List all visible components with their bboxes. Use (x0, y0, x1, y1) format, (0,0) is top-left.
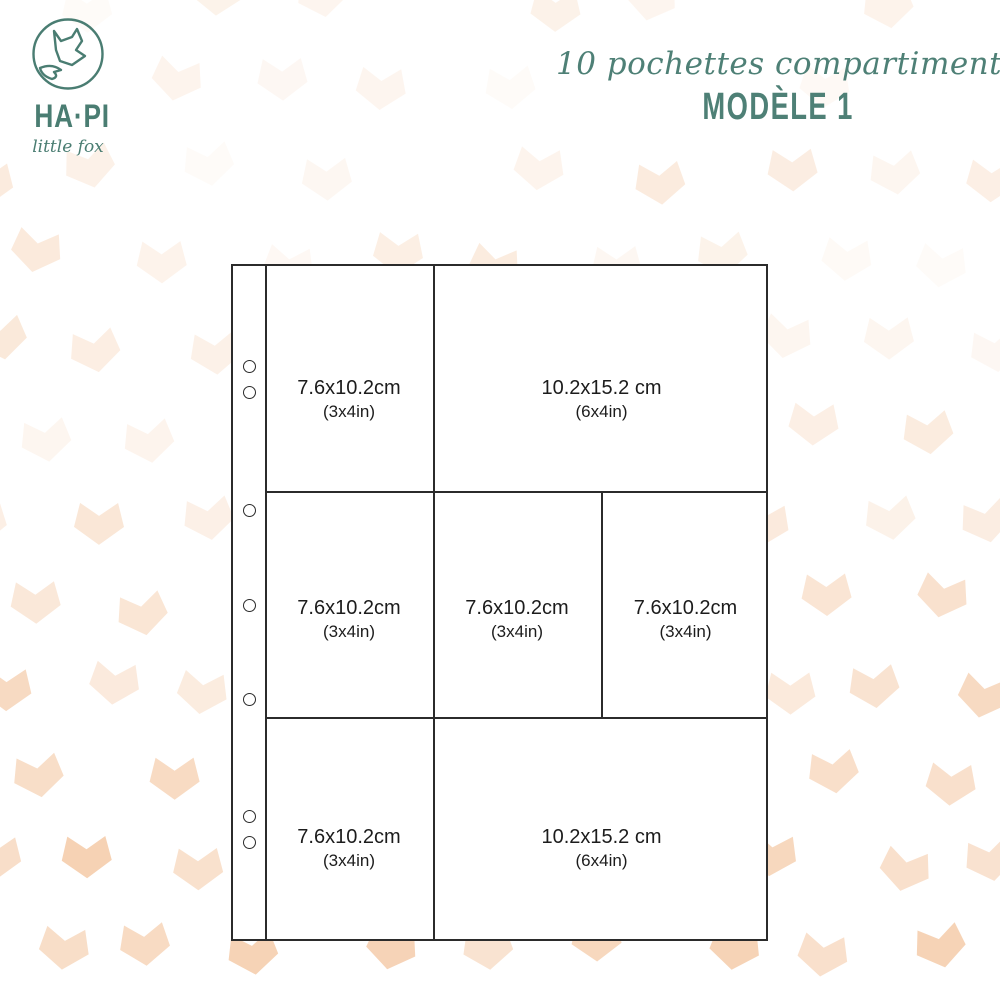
pocket-label: 7.6x10.2cm (3x4in) (265, 376, 433, 423)
pocket-label: 10.2x15.2 cm (6x4in) (433, 825, 770, 872)
brand-tagline: little fox (27, 137, 109, 157)
pocket-size-cm: 7.6x10.2cm (265, 376, 433, 400)
binder-hole (243, 693, 256, 706)
binder-hole (243, 836, 256, 849)
fox-logo-icon (30, 16, 106, 92)
pocket-size-cm: 10.2x15.2 cm (433, 376, 770, 400)
pocket-size-in: (3x4in) (433, 620, 601, 643)
pocket-size-in: (3x4in) (265, 620, 433, 643)
binder-hole (243, 386, 256, 399)
model-subtitle: MODÈLE 1 (702, 86, 853, 129)
pocket-size-in: (3x4in) (601, 620, 770, 643)
pocket-size-in: (6x4in) (433, 400, 770, 423)
brand-logo: HA·PI little fox (27, 16, 109, 157)
binder-hole (243, 810, 256, 823)
pocket-size-cm: 7.6x10.2cm (265, 596, 433, 620)
pocket-size-in: (3x4in) (265, 400, 433, 423)
horizontal-divider-2 (265, 717, 768, 719)
pocket-label: 7.6x10.2cm (3x4in) (433, 596, 601, 643)
product-image: HA·PI little fox 10 pochettes compartime… (0, 0, 1000, 1000)
pocket-page-diagram: 7.6x10.2cm (3x4in) 10.2x15.2 cm (6x4in) … (231, 264, 768, 941)
pocket-label: 10.2x15.2 cm (6x4in) (433, 376, 770, 423)
pocket-label: 7.6x10.2cm (3x4in) (265, 825, 433, 872)
header: 10 pochettes compartimentées MODÈLE 1 (556, 46, 1000, 129)
pocket-size-in: (6x4in) (433, 849, 770, 872)
binder-hole (243, 599, 256, 612)
pocket-size-cm: 7.6x10.2cm (601, 596, 770, 620)
pocket-size-cm: 7.6x10.2cm (265, 825, 433, 849)
pocket-label: 7.6x10.2cm (3x4in) (265, 596, 433, 643)
brand-name: HA·PI (34, 98, 101, 135)
pocket-size-cm: 10.2x15.2 cm (433, 825, 770, 849)
page-title: 10 pochettes compartimentées (556, 46, 1000, 82)
horizontal-divider-1 (265, 491, 768, 493)
binder-hole (243, 360, 256, 373)
pocket-size-cm: 7.6x10.2cm (433, 596, 601, 620)
binder-hole (243, 504, 256, 517)
pocket-size-in: (3x4in) (265, 849, 433, 872)
pocket-label: 7.6x10.2cm (3x4in) (601, 596, 770, 643)
